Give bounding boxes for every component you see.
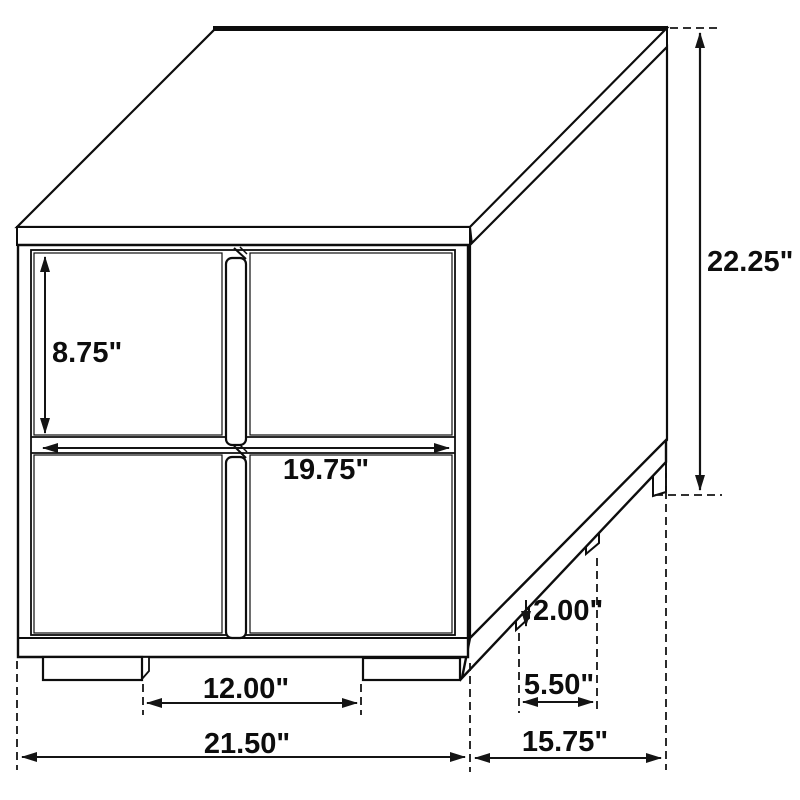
foot-front-face: [363, 658, 460, 680]
dim-label-side-leg-gap: 5.50": [524, 669, 594, 701]
dim-overall-height: 22.25": [655, 28, 793, 495]
handle-bar: [226, 258, 246, 445]
foot-front-face: [43, 657, 142, 680]
dim-label-overall-depth: 15.75": [522, 726, 608, 758]
diagram-page: 8.75" 19.75" 22.25" 2.00": [0, 0, 800, 800]
dim-front-leg-gap: 12.00": [143, 673, 361, 715]
drawer-handle-bottom: [226, 445, 247, 638]
drawer-handle-top: [226, 247, 247, 445]
dim-leg-height: 2.00": [526, 595, 603, 627]
dim-label-front-leg-gap: 12.00": [203, 673, 289, 705]
dim-label-overall-height: 22.25": [707, 246, 793, 278]
dim-label-drawer-front-height: 8.75": [52, 337, 122, 369]
dim-label-leg-height: 2.00": [533, 595, 603, 627]
dim-label-drawer-area-width: 19.75": [283, 454, 369, 486]
front-panel: [18, 245, 468, 680]
top-front-band: [17, 227, 470, 245]
dim-label-overall-width: 21.50": [204, 728, 290, 760]
front-foot-left: [43, 657, 149, 680]
front-foot-right: [363, 658, 460, 680]
handle-bar: [226, 457, 246, 638]
nightstand-dimension-diagram: 8.75" 19.75" 22.25" 2.00": [0, 0, 800, 800]
